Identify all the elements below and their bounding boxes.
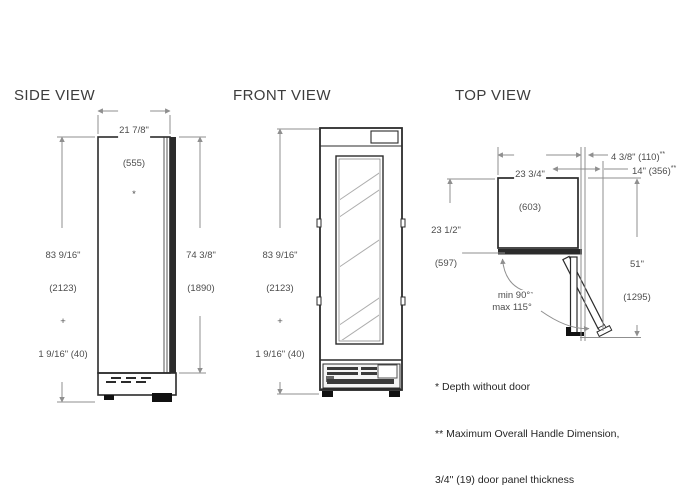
top-handle-dim-label: 4 3/8" (110)** — [610, 149, 666, 163]
top-depth-dim-label: 23 1/2" (597) — [430, 203, 462, 291]
angle-leader-line — [541, 311, 589, 329]
side-height-plus: + — [38, 316, 87, 327]
footnote-handle: ** Maximum Overall Handle Dimension, — [435, 427, 619, 443]
footnote-depth: * Depth without door — [435, 380, 619, 396]
top-closed-door — [498, 249, 582, 255]
side-door-panel — [171, 137, 177, 373]
front-vent-grille — [323, 364, 400, 388]
side-door-height-in: 74 3/8" — [186, 250, 216, 261]
front-height-plus: + — [255, 316, 304, 327]
front-glass-door — [336, 156, 383, 344]
side-foot-right — [152, 393, 172, 402]
front-foot-left — [322, 391, 333, 397]
top-view-title: TOP VIEW — [455, 88, 531, 104]
side-width-dim-label: 21 7/8" (555) * — [118, 103, 150, 220]
footnotes: * Depth without door ** Maximum Overall … — [435, 349, 619, 495]
side-width-mm: (555) — [119, 158, 149, 169]
top-handle-dim-text: 4 3/8" (110) — [611, 152, 660, 163]
side-width-note: * — [119, 191, 149, 198]
glass-reflection-lines — [332, 167, 388, 347]
side-width-in: 21 7/8" — [119, 125, 149, 136]
side-height-dim-label: 83 9/16" (2123) + 1 9/16" (40) — [37, 228, 88, 382]
top-open-door-115 — [561, 254, 612, 336]
door-swing-arc — [503, 259, 534, 293]
top-handle-dim-note: ** — [660, 151, 665, 158]
side-door-height-mm: (1890) — [186, 283, 216, 294]
top-depth-mm: (597) — [431, 258, 461, 269]
side-foot-left — [104, 395, 114, 400]
dimension-diagram: SIDE VIEW FRONT VIEW TOP VIEW 21 7/8" (5… — [0, 0, 700, 495]
front-display-panel — [371, 131, 398, 143]
door-angle-max-label: max 115° — [491, 302, 533, 313]
top-depth-in: 23 1/2" — [431, 225, 461, 236]
top-width-in: 23 3/4" — [515, 169, 545, 180]
top-swing-dim-note: ** — [671, 165, 676, 172]
top-clearance-in: 51" — [623, 259, 650, 270]
front-hinges — [317, 219, 405, 305]
side-view-title: SIDE VIEW — [14, 88, 95, 104]
front-foot-right — [389, 391, 400, 397]
top-swing-dim-label: 14" (356)** — [631, 163, 677, 177]
top-width-mm: (603) — [515, 202, 545, 213]
side-door-height-dim-label: 74 3/8" (1890) — [185, 228, 217, 316]
side-height-mm: (2123) — [38, 283, 87, 294]
side-height-extra: 1 9/16" (40) — [38, 349, 87, 360]
front-height-in: 83 9/16" — [255, 250, 304, 261]
front-height-dim-label: 83 9/16" (2123) + 1 9/16" (40) — [254, 228, 305, 382]
footnote-thickness: 3/4" (19) door panel thickness — [435, 473, 619, 489]
side-height-in: 83 9/16" — [38, 250, 87, 261]
front-height-extra: 1 9/16" (40) — [255, 349, 304, 360]
top-clearance-dim-label: 51" (1295) — [622, 237, 651, 325]
top-clearance-mm: (1295) — [623, 292, 650, 303]
front-view-title: FRONT VIEW — [233, 88, 331, 104]
door-angle-min-label: min 90° — [497, 290, 531, 301]
front-height-mm: (2123) — [255, 283, 304, 294]
top-swing-dim-text: 14" (356) — [632, 166, 671, 177]
side-vent-slots — [106, 378, 151, 382]
top-width-dim-label: 23 3/4" (603) — [514, 147, 546, 235]
front-view-cabinet — [317, 128, 405, 397]
